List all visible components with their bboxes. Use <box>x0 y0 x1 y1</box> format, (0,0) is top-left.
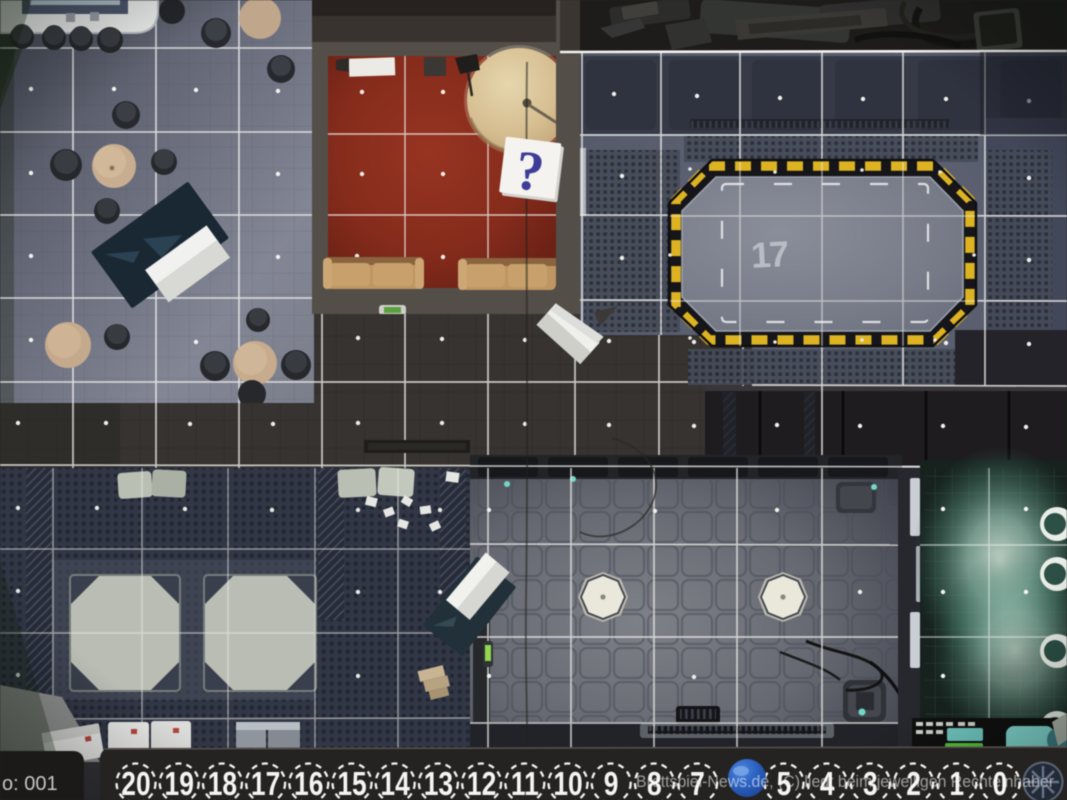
svg-text:18: 18 <box>208 766 237 800</box>
svg-text:17: 17 <box>251 766 280 800</box>
svg-text:16: 16 <box>294 766 323 800</box>
svg-text:12: 12 <box>467 766 496 800</box>
svg-text:13: 13 <box>424 766 453 800</box>
svg-text:11: 11 <box>511 766 539 800</box>
svg-text:10: 10 <box>553 766 582 800</box>
svg-text:Brettspiel-News.de, (C) liegt: Brettspiel-News.de, (C) liegt beim jewei… <box>636 772 1054 791</box>
svg-text:15: 15 <box>337 766 366 800</box>
svg-text:19: 19 <box>165 766 194 800</box>
svg-text:o: 001: o: 001 <box>2 773 58 795</box>
svg-text:14: 14 <box>380 766 410 800</box>
svg-text:20: 20 <box>121 766 150 800</box>
svg-text:9: 9 <box>604 766 619 800</box>
